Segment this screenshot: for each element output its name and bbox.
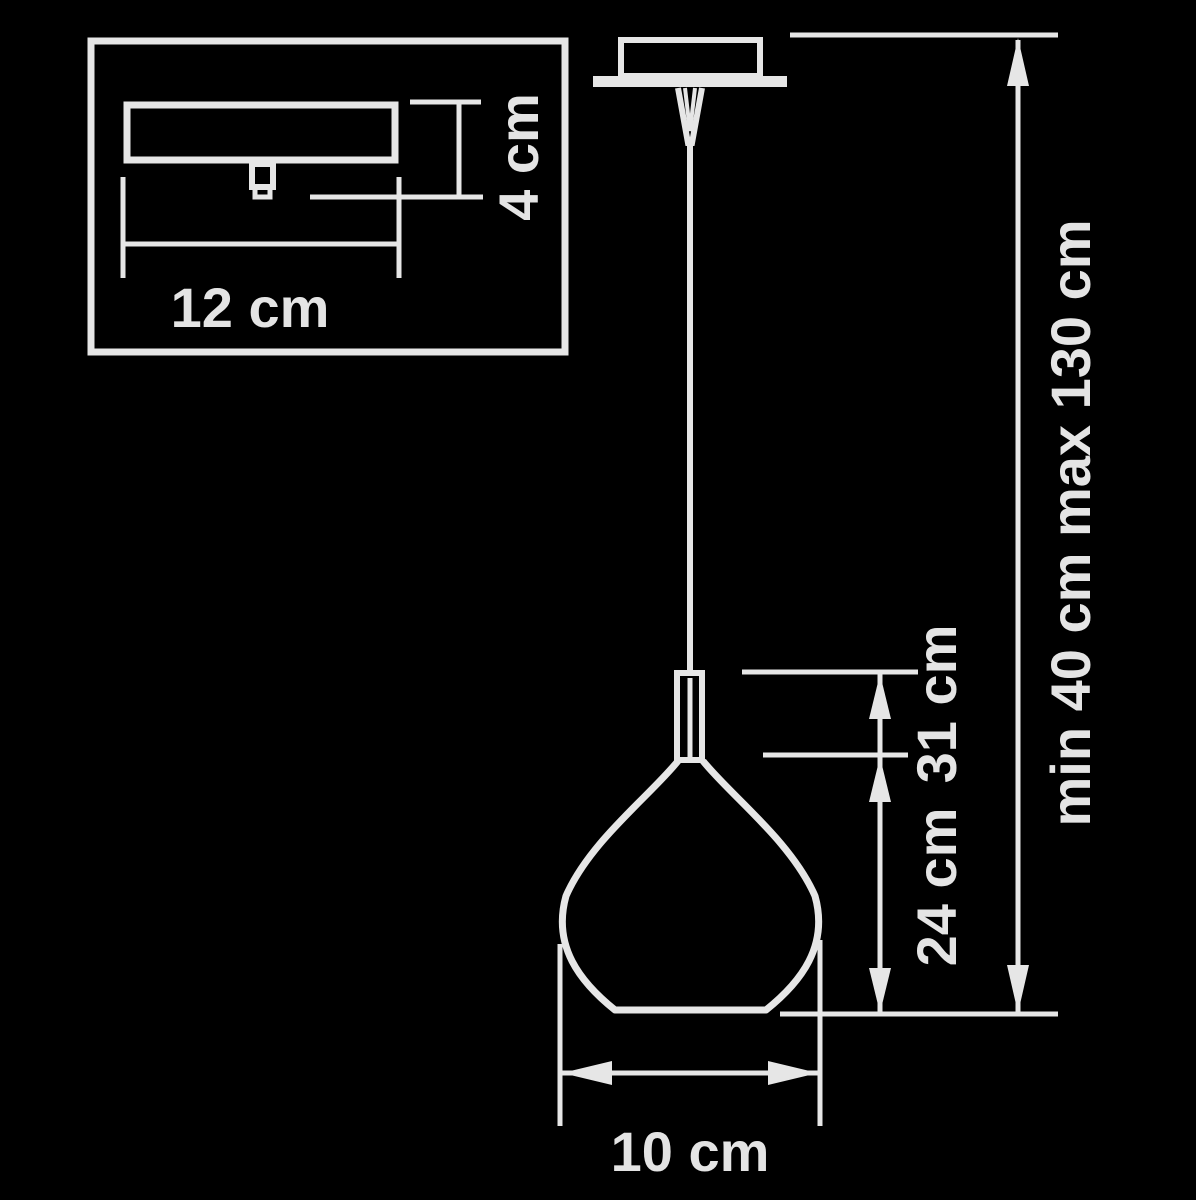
dimension-12cm-lines (121, 177, 401, 278)
arrow-up-icon (869, 757, 891, 802)
shade-diameter-label: 10 cm (611, 1124, 770, 1180)
lamp-shade (562, 761, 818, 1010)
fixture-height-label: 31 cm (909, 625, 965, 784)
arrow-down-icon (869, 968, 891, 1013)
arrow-right-icon (768, 1061, 818, 1085)
arrow-down-icon (1007, 965, 1029, 1013)
suspension-range-label: min 40 cm max 130 cm (1043, 219, 1099, 826)
shade-height-label: 24 cm (909, 808, 965, 967)
canopy-width-label: 12 cm (171, 280, 330, 336)
cable-grip-upper (252, 164, 273, 187)
ceiling-canopy (621, 40, 760, 76)
canopy-height-label: 4 cm (491, 93, 547, 221)
pendant-drawing (562, 40, 818, 1010)
dimension-10cm-lines (560, 940, 820, 1126)
canopy-flange (593, 76, 787, 87)
diagram-line-art (0, 0, 1196, 1200)
arrow-left-icon (562, 1061, 612, 1085)
dimension-31-24-lines (742, 672, 1058, 1014)
arrow-up-icon (1007, 38, 1029, 86)
arrow-up-icon (869, 674, 891, 719)
lamp-dimension-diagram: 12 cm 4 cm 31 cm 24 cm min 40 cm max 130… (0, 0, 1196, 1200)
canopy-side-view (127, 105, 395, 160)
cable-grip-lower (255, 187, 270, 197)
